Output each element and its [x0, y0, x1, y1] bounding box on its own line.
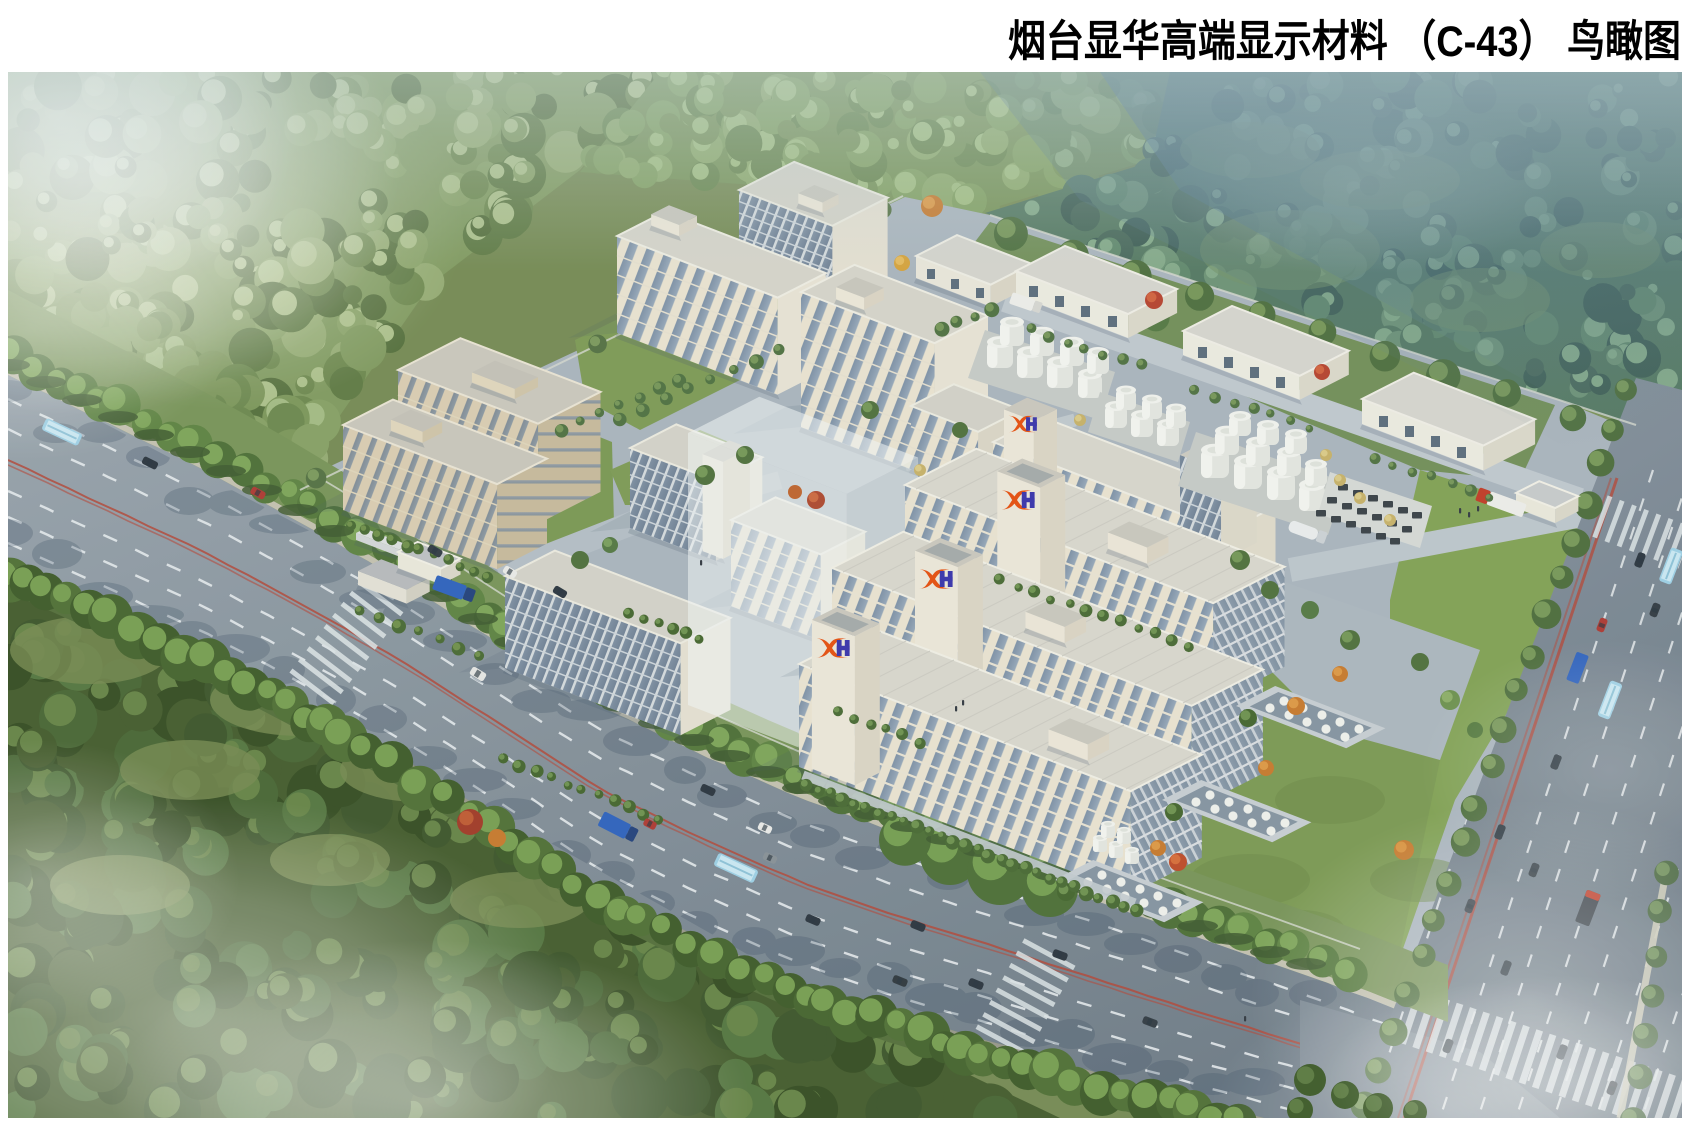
svg-text:烟台显华高端显示材料 （C-43） 鸟瞰图: 烟台显华高端显示材料 （C-43） 鸟瞰图	[1008, 18, 1681, 66]
